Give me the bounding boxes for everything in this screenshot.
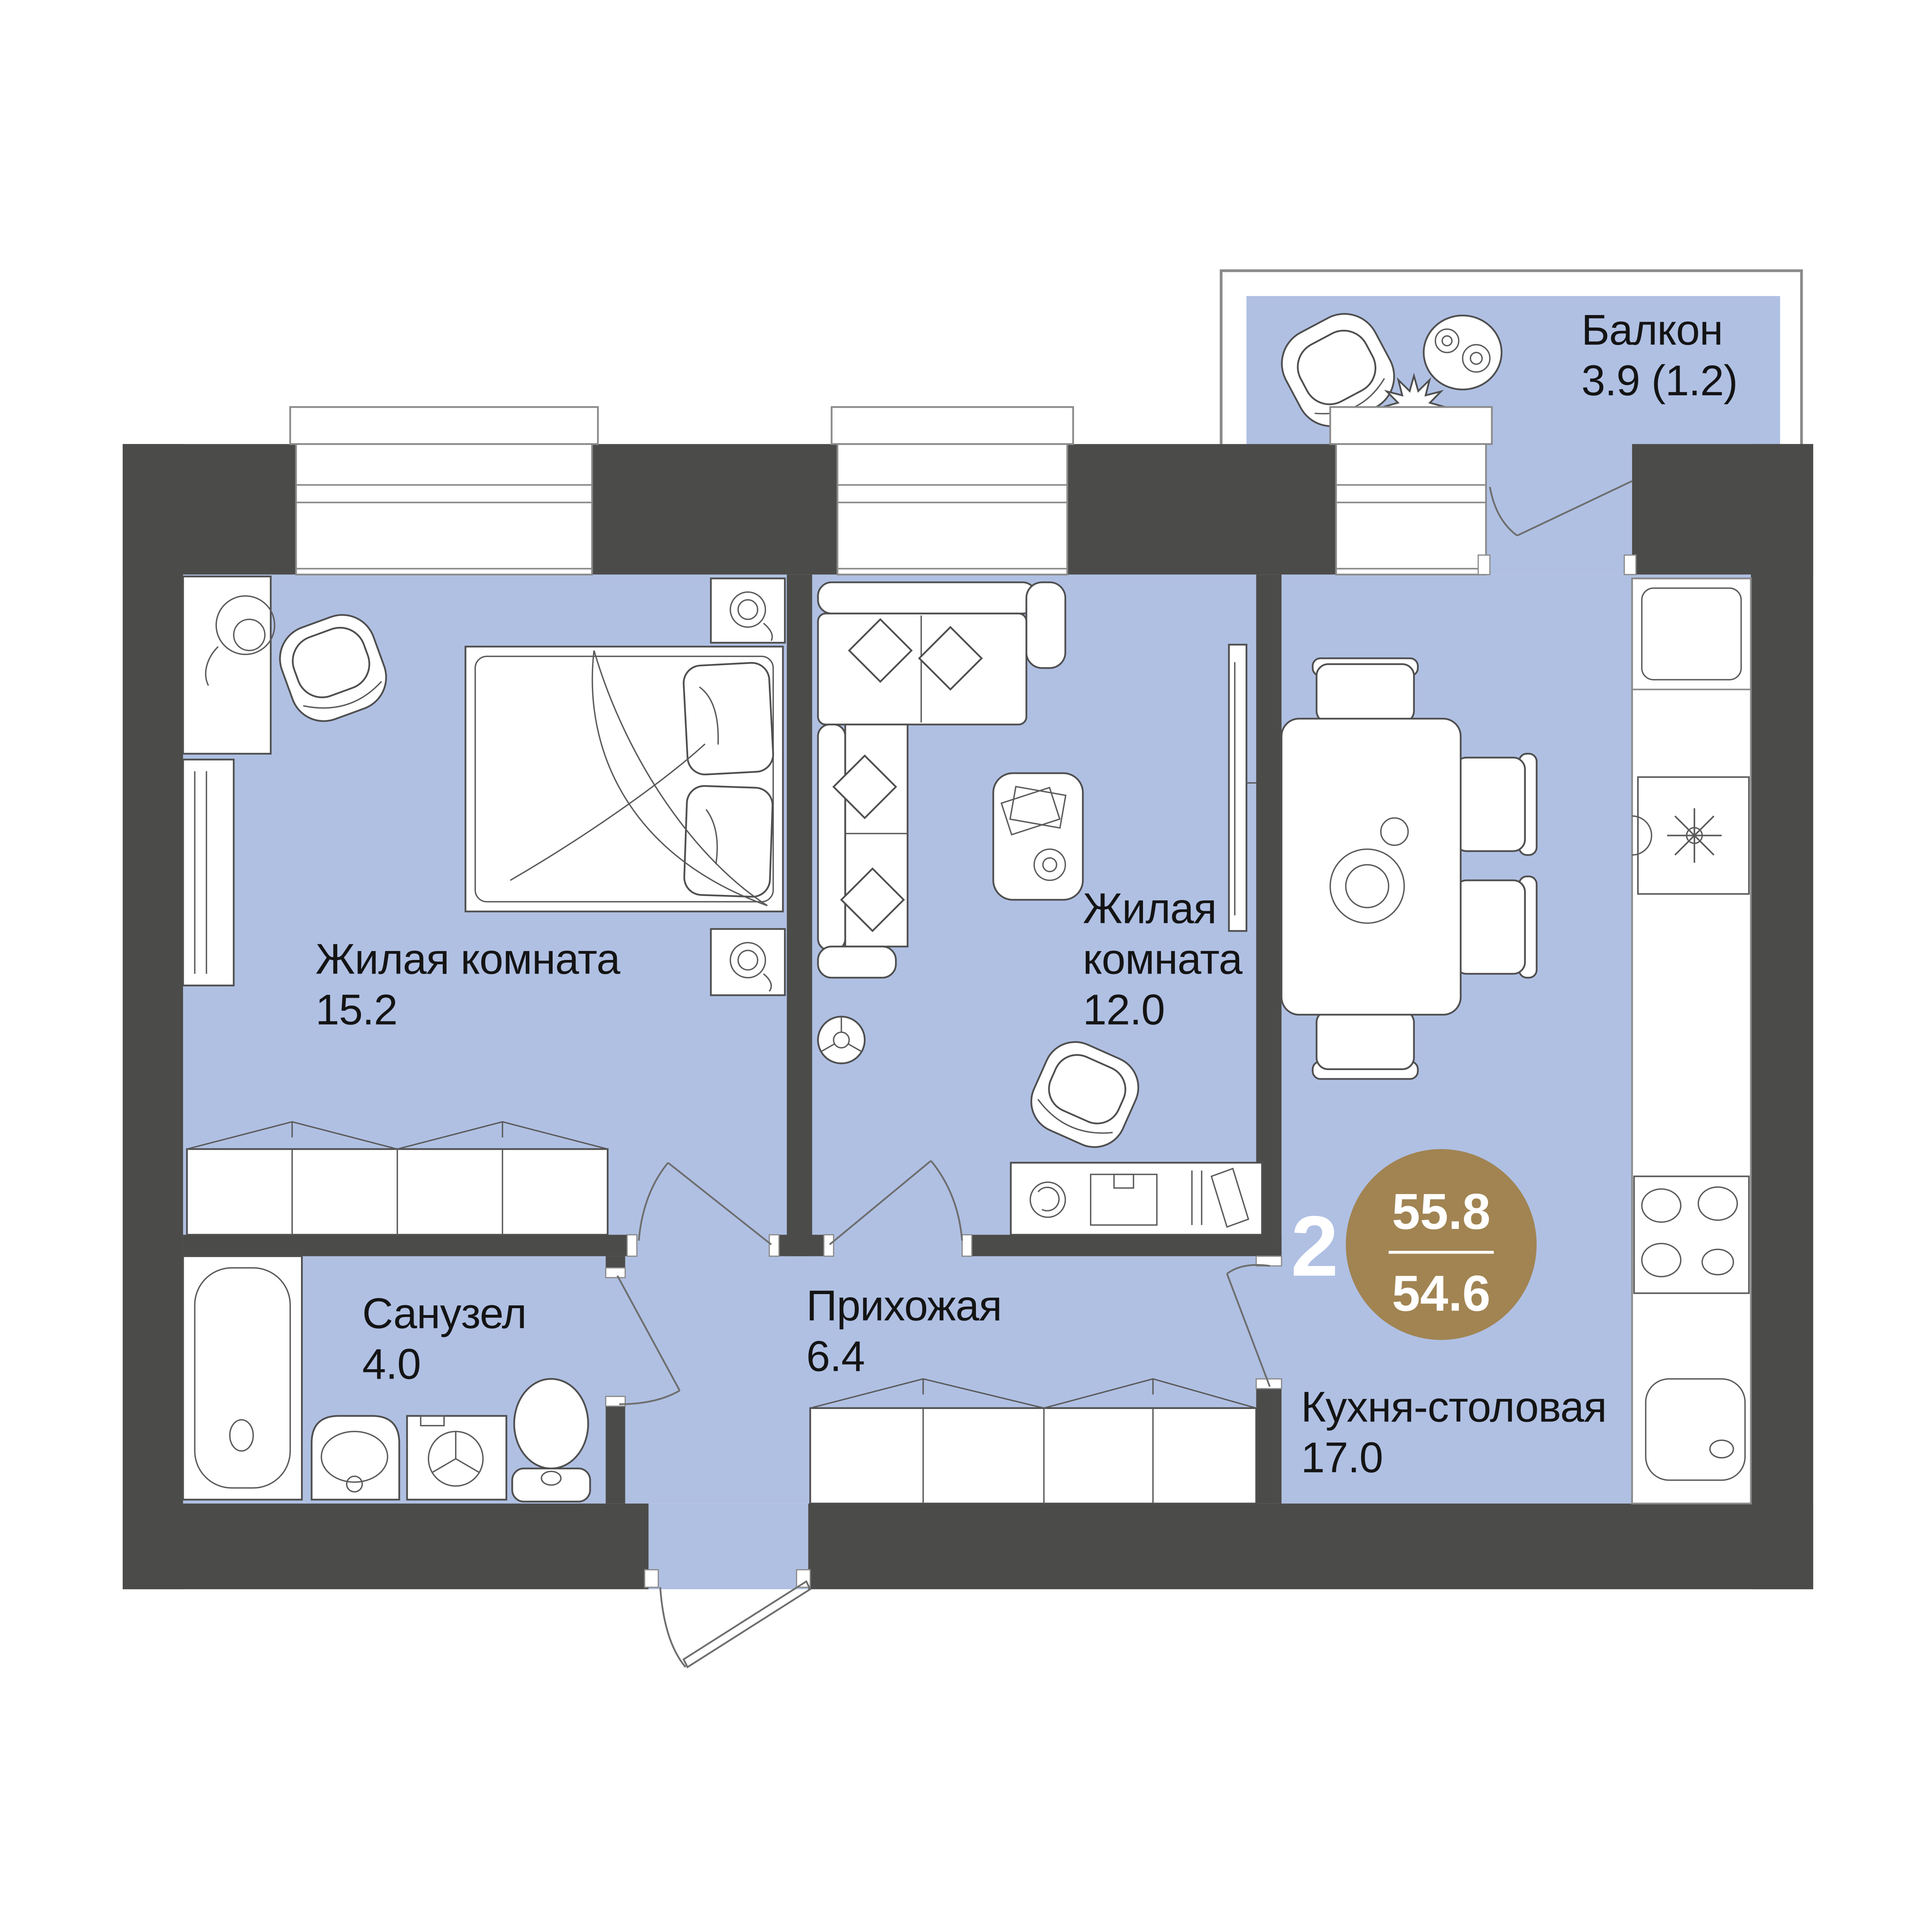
nightstand-lamp-icon — [711, 578, 785, 643]
badge-area-total: 55.8 — [1392, 1183, 1490, 1240]
wall-top-2 — [592, 444, 837, 574]
wall-hall-mid — [771, 1235, 828, 1256]
wall-bath-stub-bottom — [606, 1404, 625, 1504]
label-balcony-area: 3.9 (1.2) — [1582, 357, 1738, 405]
label-living-room-1-name: Жилая комната — [315, 935, 620, 983]
label-kitchen-name: Кухня-столовая — [1301, 1383, 1607, 1431]
wall-top-3 — [1067, 444, 1336, 574]
coffee-table-icon — [993, 773, 1083, 900]
wall-left — [123, 444, 183, 1589]
wall-kitchen-stub — [1256, 1387, 1282, 1504]
window-icon-1 — [290, 407, 598, 574]
badge-area-living: 54.6 — [1392, 1265, 1490, 1322]
toilet-icon — [512, 1379, 590, 1502]
window-icon-2 — [831, 407, 1073, 574]
bathtub-icon — [183, 1256, 302, 1500]
washing-machine-icon — [407, 1416, 506, 1500]
wall-right — [1751, 444, 1813, 1589]
balcony-table-icon — [1424, 315, 1502, 389]
floor-balcony-doorway — [1486, 444, 1632, 574]
washbasin-icon — [312, 1416, 399, 1500]
floorplan-canvas: Жилая комната 15.2 Жилая комната 12.0 Са… — [0, 0, 1932, 1932]
stove-icon — [1634, 1176, 1749, 1293]
label-balcony-name: Балкон — [1582, 306, 1723, 354]
pillow-icon — [684, 785, 773, 898]
label-hallway-area: 6.4 — [806, 1333, 865, 1381]
desk-icon — [1011, 1163, 1262, 1235]
kitchen-sink-icon — [1632, 777, 1749, 894]
label-living-room-1-area: 15.2 — [315, 986, 397, 1034]
pillow-icon — [683, 662, 774, 775]
wall-divider-kitchen — [1256, 574, 1282, 1256]
wall-divider-rooms — [787, 574, 812, 1256]
label-bathroom-area: 4.0 — [362, 1340, 421, 1388]
floor-lamp-icon — [818, 1017, 865, 1064]
label-hallway-name: Прихожая — [806, 1282, 1002, 1330]
label-bathroom-name: Санузел — [362, 1290, 527, 1338]
wall-hall-left — [183, 1235, 635, 1256]
floorplan-svg: Жилая комната 15.2 Жилая комната 12.0 Са… — [0, 0, 1932, 1932]
wall-hall-right — [968, 1235, 1282, 1256]
kitchen-counter — [1632, 578, 1751, 1503]
wall-bottom-right — [808, 1504, 1813, 1589]
label-living-room-2-name-2: комната — [1083, 935, 1243, 983]
nightstand-lamp-icon — [711, 929, 785, 995]
label-living-room-2-name-1: Жилая — [1083, 884, 1217, 932]
badge-rooms-count: 2 — [1291, 1198, 1338, 1294]
floor-entrance-passage — [648, 1504, 808, 1589]
shelf-icon — [183, 759, 234, 985]
wall-bottom-left — [123, 1504, 648, 1589]
bed-icon — [465, 646, 783, 911]
corner-table — [183, 576, 275, 754]
label-living-room-2-area: 12.0 — [1083, 986, 1165, 1034]
label-kitchen-area: 17.0 — [1301, 1434, 1383, 1482]
window-icon-3 — [1330, 407, 1492, 574]
